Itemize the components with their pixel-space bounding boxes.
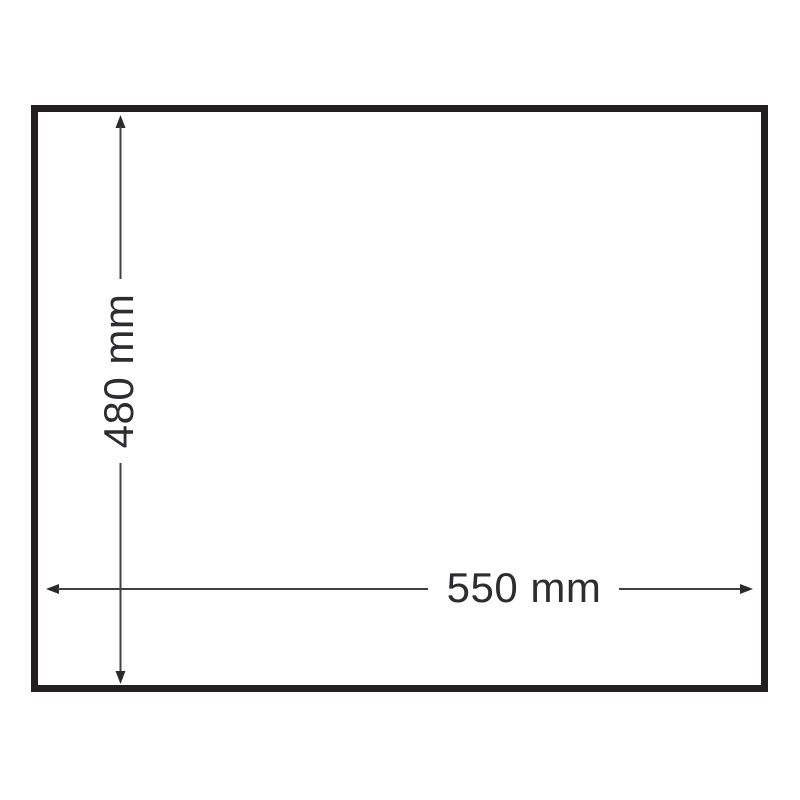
dimension-diagram: 480 mm 550 mm [0, 0, 800, 800]
width-dimension-label: 550 mm [447, 567, 602, 609]
arrowhead-down-icon [116, 671, 126, 684]
height-dimension-label: 480 mm [98, 294, 140, 449]
width-dimension-arrow [46, 584, 753, 594]
arrowhead-right-icon [740, 584, 753, 594]
